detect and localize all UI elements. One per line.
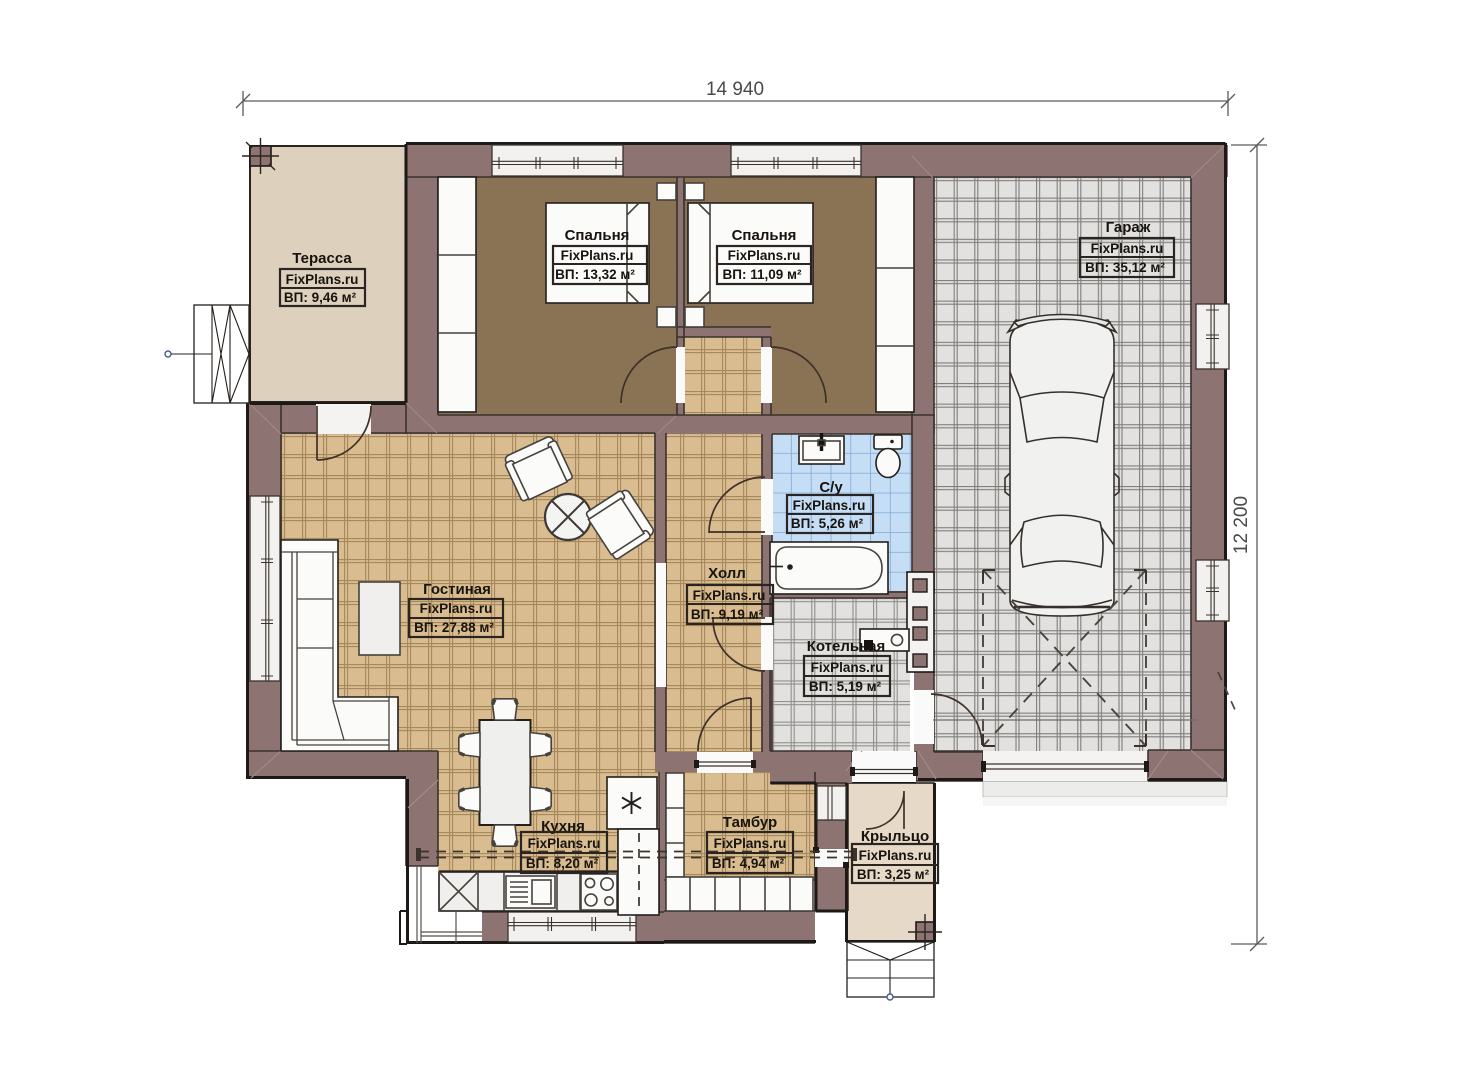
svg-text:ВП: 13,32 м²: ВП: 13,32 м² [555,267,635,282]
svg-text:Спальня: Спальня [732,227,797,244]
svg-text:ВП: 11,09 м²: ВП: 11,09 м² [723,267,802,282]
svg-text:FixPlans.ru: FixPlans.ru [420,601,493,616]
svg-text:ВП: 9,46 м²: ВП: 9,46 м² [284,290,357,305]
svg-text:Гараж: Гараж [1106,219,1151,236]
svg-text:FixPlans.ru: FixPlans.ru [793,498,866,513]
svg-text:Гостиная: Гостиная [423,581,491,598]
svg-text:12 200: 12 200 [1231,496,1252,554]
svg-text:ВП: 8,20 м²: ВП: 8,20 м² [526,856,599,871]
svg-text:ВП: 3,25 м²: ВП: 3,25 м² [857,867,930,882]
svg-text:FixPlans.ru: FixPlans.ru [859,848,932,863]
svg-text:ВП: 9,19 м²: ВП: 9,19 м² [691,607,764,622]
svg-text:14 940: 14 940 [706,79,764,100]
svg-text:ВП: 4,94 м²: ВП: 4,94 м² [712,856,785,871]
svg-text:ВП: 35,12 м²: ВП: 35,12 м² [1085,260,1165,275]
svg-text:ВП: 5,26 м²: ВП: 5,26 м² [791,516,864,531]
svg-text:Терасса: Терасса [292,250,352,267]
svg-text:Спальня: Спальня [565,227,630,244]
svg-text:Котельная: Котельная [807,638,886,655]
svg-text:FixPlans.ru: FixPlans.ru [1091,241,1164,256]
svg-text:FixPlans.ru: FixPlans.ru [728,248,801,263]
svg-text:FixPlans.ru: FixPlans.ru [714,836,787,851]
svg-text:ВП: 27,88 м²: ВП: 27,88 м² [414,620,494,635]
svg-text:FixPlans.ru: FixPlans.ru [811,660,884,675]
svg-text:FixPlans.ru: FixPlans.ru [693,588,766,603]
svg-text:FixPlans.ru: FixPlans.ru [561,248,634,263]
svg-text:ВП: 5,19 м²: ВП: 5,19 м² [809,679,882,694]
svg-text:FixPlans.ru: FixPlans.ru [286,272,359,287]
svg-text:С/у: С/у [819,479,843,496]
svg-text:Тамбур: Тамбур [723,814,777,831]
svg-text:Холл: Холл [708,565,746,582]
svg-text:FixPlans.ru: FixPlans.ru [528,836,601,851]
svg-text:Крыльцо: Крыльцо [861,828,929,845]
